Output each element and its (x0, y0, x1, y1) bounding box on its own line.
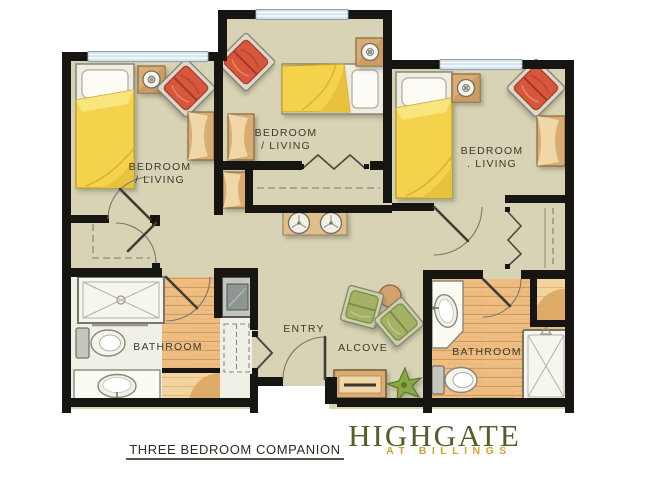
label-entry: ENTRY (283, 323, 324, 335)
label-bedroom-right-2: . LIVING (467, 158, 517, 170)
toilet-left (76, 328, 125, 358)
bed-center (282, 64, 384, 114)
title-block: THREE BEDROOM COMPANION HIGHGATE AT BILL… (0, 419, 647, 460)
nightstand-center (356, 38, 384, 66)
shower-left (78, 277, 164, 323)
label-bedroom-center-1: BEDROOM (255, 127, 318, 139)
dresser-closet-center (223, 172, 246, 208)
hall-counter (283, 212, 347, 235)
nightstand-right (452, 74, 480, 102)
dresser-center (228, 114, 254, 160)
brand-logo: HIGHGATE AT BILLINGS (348, 421, 521, 457)
floor-plan-page: BEDROOM / LIVING BEDROOM / LIVING BEDROO… (0, 0, 647, 500)
utility-appliance (222, 277, 253, 317)
bed-right (396, 72, 452, 198)
plan-title: THREE BEDROOM COMPANION (126, 443, 343, 460)
entry-nook-exterior (254, 386, 329, 411)
dresser-right (537, 116, 565, 166)
window-center (256, 10, 348, 20)
label-bedroom-left-1: BEDROOM (129, 161, 192, 173)
bed-left (76, 64, 134, 188)
toilet-right (432, 366, 477, 394)
floor-plan-drawing: BEDROOM / LIVING BEDROOM / LIVING BEDROO… (0, 0, 647, 418)
label-bedroom-center-2: / LIVING (261, 140, 311, 152)
label-bathroom-left: BATHROOM (133, 341, 203, 353)
shower-right (523, 327, 569, 402)
window-right (440, 60, 522, 70)
dresser-left (188, 112, 214, 160)
media-console (334, 370, 386, 398)
label-bathroom-right: BATHROOM (452, 346, 522, 358)
label-bedroom-right-1: BEDROOM (461, 145, 524, 157)
label-alcove: ALCOVE (338, 342, 388, 354)
window-left (88, 52, 208, 62)
label-bedroom-left-2: / LIVING (135, 174, 185, 186)
